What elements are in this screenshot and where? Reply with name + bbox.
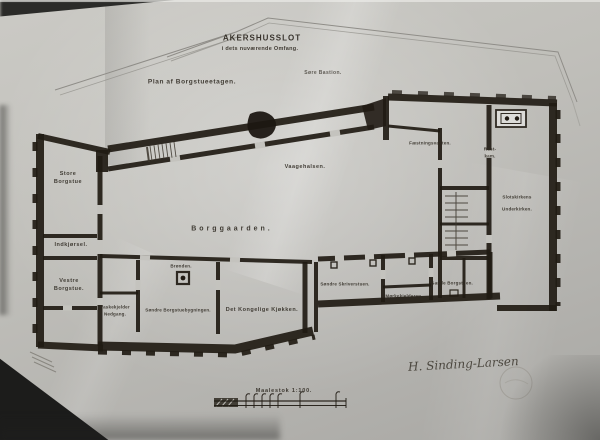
room-label-indkjorsel: Indkjørsel. <box>54 241 87 249</box>
plan-label: Plan af Borgstueetagen. <box>148 79 236 86</box>
room-label-underkirken: Slotskirkens Underkirken. <box>502 191 532 214</box>
photo-edge-top <box>0 0 600 2</box>
room-label-line: Slotskirkens <box>502 194 531 199</box>
wall-openings <box>63 133 489 309</box>
room-label-kongelige-kjokken: Det Kongelige Kjøkken. <box>226 306 298 314</box>
drawing-subtitle: i dets nuværende Omfang. <box>222 46 299 52</box>
room-label-line: Vestre <box>59 278 79 284</box>
scale-bar <box>214 392 346 408</box>
room-label-vaagehalsen: Vaagehalsen. <box>285 163 326 171</box>
photo-corner-bottom-right <box>490 355 600 440</box>
fixtures <box>177 110 526 296</box>
room-label-sondre-borgstuebygning: Søndre Borgstuebygningen. <box>145 308 211 315</box>
exterior-steps <box>30 352 56 372</box>
room-label-line: Store <box>60 171 77 177</box>
photo-edge-left <box>0 105 11 315</box>
room-label-line: Nedgang. <box>104 311 126 316</box>
photo-edge-bottom <box>0 414 280 440</box>
room-label-line: Borgstue. <box>54 286 84 292</box>
room-label-faestningsvagten: Fæstningsvagten. <box>409 141 451 148</box>
room-label-line: Borgstue <box>54 179 82 185</box>
courtyard-label: Borggaarden. <box>191 226 273 233</box>
bastion-label: Søre Bastion. <box>304 70 341 76</box>
photographed-floor-plan: AKERSHUSSLOT i dets nuværende Omfang. Pl… <box>0 0 600 440</box>
room-label-vaskekjelder: Vaskekjelder Nedgang. <box>100 304 130 318</box>
well-label: Brønden. <box>170 264 191 271</box>
room-label-line: kam. <box>484 153 495 158</box>
room-label-line: Rust- <box>484 146 497 151</box>
room-label-vestre-borgstue: Vestre Borgstue. <box>54 277 84 294</box>
room-label-store-borgstue: Store Borgstue <box>54 170 82 187</box>
room-label-rustkammer: Rust- kam. <box>484 146 497 160</box>
drawing-title: AKERSHUSSLOT <box>223 34 301 43</box>
room-label-sondre-skriverstue: Søndre Skriverstuen. <box>320 282 369 289</box>
room-label-line: Underkirken. <box>502 206 532 211</box>
stair-treads <box>147 142 468 250</box>
room-label-line: Vaskekjelder <box>100 304 130 309</box>
room-label-gamle-borgstue: Gamle Borgstuen. <box>431 281 473 288</box>
room-label-morkekjelder: Mørkekjelderen. <box>385 294 422 301</box>
scale-label: Maalestok 1:100. <box>256 388 313 394</box>
